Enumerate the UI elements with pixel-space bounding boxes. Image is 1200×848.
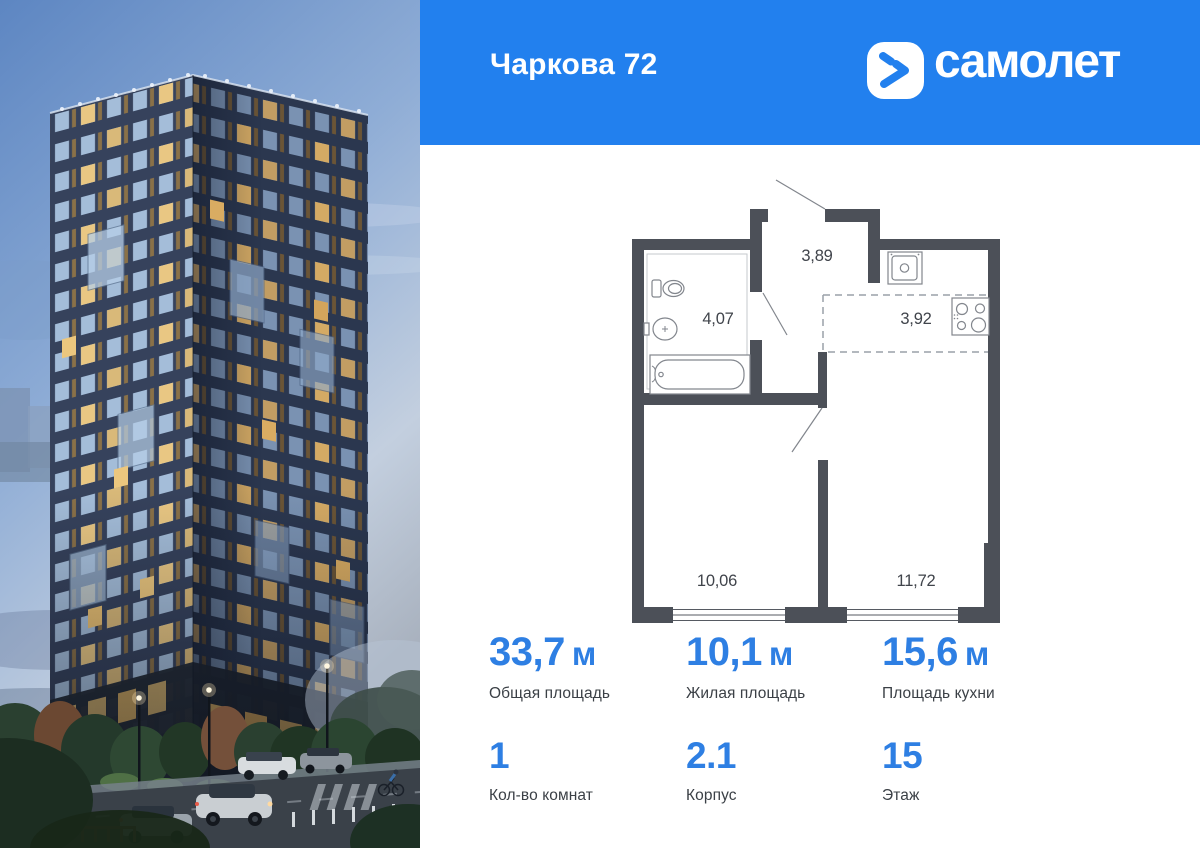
door-swings [763,180,825,452]
stat-living-area-unit: м [769,635,793,672]
stat-rooms-count-label: Кол-во комнат [489,787,593,805]
stat-living-area-value: 10,1м [686,630,805,676]
stat-building-value: 2.1 [686,734,737,778]
stat-kitchen-area-unit: м [965,635,989,672]
kitchen-sink-fixture [888,252,922,284]
page-title: Чаркова 72 [490,46,657,84]
room-area-bathroom: 4,07 [702,310,733,328]
room-area-labels: 3,89 4,07 3,92 10,06 11,72 [697,247,936,590]
bathtub-fixture [650,355,750,394]
room-area-living: 11,72 [896,572,935,590]
listing-card: Чаркова 72 самолет [0,0,1200,848]
building-photo [0,0,420,848]
room-area-bedroom: 10,06 [697,572,737,590]
stat-living-area-label: Жилая площадь [686,685,805,703]
stat-total-area: 33,7м Общая площадь [489,630,610,703]
washbasin-fixture [644,318,677,340]
stat-kitchen-area-label: Площадь кухни [882,685,995,703]
samolet-logo-icon [867,42,924,99]
bathroom-fixtures [644,280,750,394]
stat-living-area: 10,1м Жилая площадь [686,630,805,703]
stove-fixture [952,298,989,335]
listing-content: Чаркова 72 самолет [420,0,1200,848]
toilet-fixture [652,280,684,297]
stat-building: 2.1 Корпус [686,734,737,805]
stat-building-label: Корпус [686,787,737,805]
stat-rooms-count: 1 Кол-во комнат [489,734,593,805]
building-photo-illustration [0,0,420,848]
stat-floor: 15 Этаж [882,734,922,805]
stat-floor-label: Этаж [882,787,922,805]
stat-total-area-value: 33,7м [489,630,610,676]
stat-rooms-count-value: 1 [489,734,593,778]
stat-floor-value: 15 [882,734,922,778]
stat-kitchen-area-value: 15,6м [882,630,995,676]
stat-total-area-unit: м [572,635,596,672]
floor-plan: 3,89 4,07 3,92 10,06 11,72 [600,160,1020,640]
header: Чаркова 72 самолет [420,0,1200,145]
stat-total-area-label: Общая площадь [489,685,610,703]
samolet-logo-text: самолет [934,34,1120,89]
room-area-kitchen: 3,92 [900,310,931,328]
room-area-hallway: 3,89 [801,247,832,265]
stat-kitchen-area: 15,6м Площадь кухни [882,630,995,703]
